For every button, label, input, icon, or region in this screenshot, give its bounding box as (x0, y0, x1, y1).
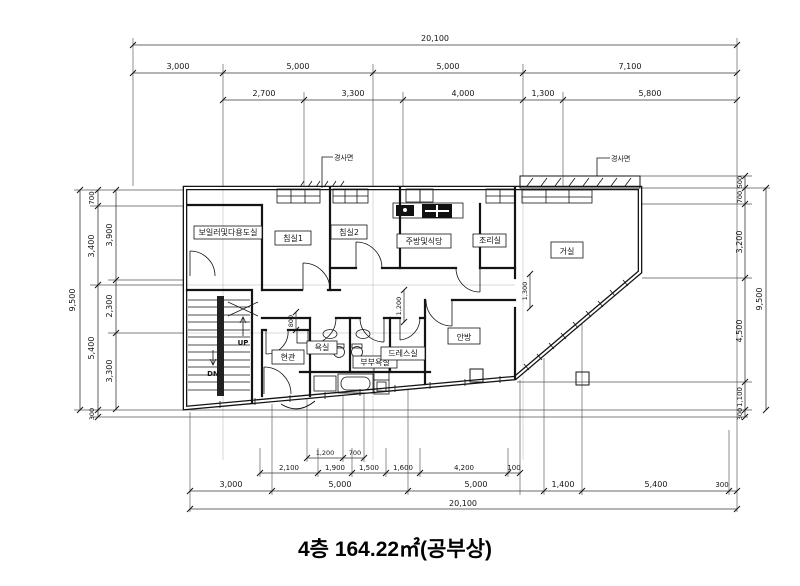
kitchen-fixtures (393, 203, 463, 218)
windows (277, 189, 592, 203)
dim-right: 4,500 (735, 320, 744, 343)
stair-up-label: UP (238, 339, 249, 347)
laundry (314, 376, 336, 391)
boiler-door (190, 251, 215, 276)
washbasin (356, 330, 370, 339)
dim-bottom: 100 (507, 464, 520, 472)
dim-bottom: 4,200 (454, 464, 474, 472)
dim-interior: 800 (287, 315, 295, 327)
stair-cross (228, 302, 258, 316)
dim-right: 500 (736, 176, 744, 188)
room-label-bed1: 침실1 (283, 233, 303, 243)
vanity (297, 330, 308, 343)
dim-top: 5,000 (437, 62, 460, 71)
living-door (456, 268, 480, 292)
slope-label-left: 경사면 (334, 153, 353, 162)
leader-line (322, 157, 333, 188)
dim-right: 300 (736, 408, 744, 420)
room-label-bath: 욕실 (315, 342, 330, 352)
bottom-dimensions: 1,200 700 2,100 1,900 1,500 1,600 4,200 … (187, 449, 740, 512)
dim-bottom: 1,200 (316, 449, 335, 457)
dim-right: 700 (736, 191, 744, 203)
cabinet (406, 189, 420, 202)
room-label-boiler: 보일러및다용도실 (199, 227, 258, 237)
dim-top: 3,300 (342, 89, 365, 98)
diagonal-wall-hatch (524, 280, 628, 370)
dim-top: 5,800 (639, 89, 662, 98)
dim-left: 3,300 (105, 360, 114, 383)
dim-right-overall: 9,500 (755, 288, 764, 311)
window (277, 189, 320, 203)
dim-right: 1,100 (736, 387, 744, 407)
leader-line (597, 158, 610, 176)
stairs: UP DN (188, 296, 258, 396)
dim-interior: 1,300 (521, 282, 529, 301)
right-dimensions: 500 700 3,200 4,500 1,100 300 9,500 (735, 173, 769, 420)
window (522, 190, 592, 203)
dim-bottom: 3,000 (220, 480, 243, 489)
dim-left: 2,300 (105, 295, 114, 318)
window (333, 189, 368, 203)
room-label-pantry: 조리실 (479, 235, 501, 245)
sink-drain (403, 208, 407, 212)
room-label-living: 거실 (560, 246, 575, 256)
dim-top: 7,100 (619, 62, 642, 71)
dim-bottom: 2,100 (279, 464, 299, 472)
dim-bottom: 5,000 (465, 480, 488, 489)
dim-top: 2,700 (253, 89, 276, 98)
bathtub-inner (341, 377, 370, 390)
dim-bottom: 300 (715, 481, 728, 489)
stair-stringer (217, 296, 224, 396)
dim-bottom: 700 (349, 449, 361, 457)
floor-plan-page: 20,100 3,000 5,000 5,000 7,100 2,700 3,3… (0, 0, 800, 586)
dim-interior: 1,200 (395, 297, 403, 316)
dim-top: 5,000 (287, 62, 310, 71)
dim-bottom: 1,500 (359, 464, 379, 472)
master-door (426, 300, 452, 326)
left-dimensions: 9,500 700 3,400 5,400 300 3,900 2,300 3,… (68, 187, 119, 420)
dim-left: 5,400 (87, 337, 96, 360)
room-label-kitchen: 주방및식당 (406, 236, 443, 246)
drawing-title: 4층 164.22㎡(공부상) (298, 537, 492, 561)
top-dimensions: 20,100 3,000 5,000 5,000 7,100 2,700 3,3… (130, 34, 740, 103)
dim-top: 3,000 (167, 62, 190, 71)
cabinet (420, 189, 433, 202)
extension-lines (74, 38, 770, 512)
slope-annotations: 경사면 경사면 (322, 153, 630, 188)
room-label-dress: 드레스실 (388, 348, 417, 358)
dim-left: 3,400 (87, 235, 96, 258)
room-label-master: 안방 (457, 332, 472, 342)
dim-bottom: 1,900 (325, 464, 345, 472)
dim-bottom: 5,000 (329, 480, 352, 489)
interior-dimensions: 1,300 1,200 800 (287, 271, 533, 333)
bed2-door (356, 242, 382, 268)
floor-plan-drawing: 20,100 3,000 5,000 5,000 7,100 2,700 3,3… (0, 0, 800, 586)
dim-left-overall: 9,500 (68, 289, 77, 312)
dim-right: 3,200 (735, 231, 744, 254)
dim-bottom-overall: 20,100 (449, 499, 477, 508)
interior-walls (187, 188, 515, 402)
window (486, 189, 515, 203)
washbasin (323, 330, 337, 339)
bottom-bay-bump (281, 401, 315, 409)
bath-door (310, 318, 336, 344)
dim-left: 700 (88, 191, 96, 204)
bed1-door (303, 263, 330, 290)
parapet-hatch (527, 178, 631, 186)
slope-label-right: 경사면 (611, 154, 630, 163)
dim-left: 3,900 (105, 224, 114, 247)
dim-left: 300 (88, 408, 96, 420)
room-label-bed2: 침실2 (339, 227, 359, 237)
dress-door (400, 318, 420, 340)
dim-top: 4,000 (452, 89, 475, 98)
dim-bottom: 1,600 (393, 464, 413, 472)
entry-door (264, 367, 291, 394)
dim-bottom: 1,400 (552, 480, 575, 489)
room-label-entrance: 현관 (281, 352, 296, 362)
dim-top-overall: 20,100 (421, 34, 449, 43)
dim-top: 1,300 (532, 89, 555, 98)
column (576, 372, 589, 385)
stair-down-label: DN (207, 370, 219, 378)
dim-bottom: 5,400 (645, 480, 668, 489)
